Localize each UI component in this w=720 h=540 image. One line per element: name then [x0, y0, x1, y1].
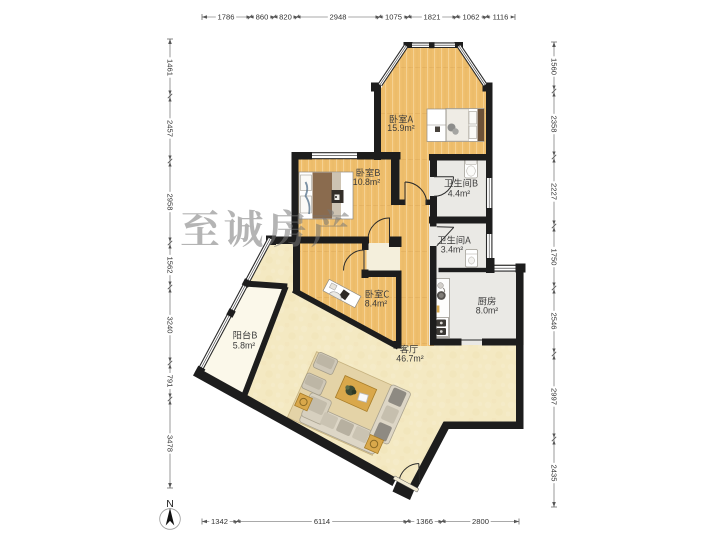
svg-text:3240: 3240 — [166, 317, 175, 334]
svg-text:6114: 6114 — [314, 517, 330, 526]
svg-text:15.9m²: 15.9m² — [387, 123, 414, 133]
svg-text:2546: 2546 — [550, 313, 559, 330]
svg-text:2958: 2958 — [166, 194, 175, 211]
svg-text:1062: 1062 — [463, 13, 480, 22]
svg-text:3.4m²: 3.4m² — [441, 245, 464, 255]
svg-text:2948: 2948 — [330, 13, 347, 22]
svg-text:8.4m²: 8.4m² — [365, 299, 388, 309]
svg-text:1786: 1786 — [218, 13, 235, 22]
svg-text:1821: 1821 — [424, 13, 441, 22]
svg-text:2435: 2435 — [550, 465, 559, 482]
svg-text:1750: 1750 — [550, 249, 559, 266]
svg-text:2800: 2800 — [472, 517, 489, 526]
svg-text:1116: 1116 — [493, 13, 509, 22]
svg-text:820: 820 — [279, 13, 292, 22]
svg-text:10.8m²: 10.8m² — [353, 177, 380, 187]
svg-text:1075: 1075 — [385, 13, 402, 22]
svg-text:791: 791 — [166, 375, 175, 388]
svg-text:4.4m²: 4.4m² — [448, 189, 471, 199]
svg-text:2457: 2457 — [166, 120, 175, 137]
svg-text:2227: 2227 — [550, 183, 559, 200]
svg-text:1560: 1560 — [550, 58, 559, 75]
svg-text:1342: 1342 — [211, 517, 228, 526]
svg-text:46.7m²: 46.7m² — [396, 354, 423, 364]
svg-text:860: 860 — [256, 13, 269, 22]
svg-text:2997: 2997 — [550, 388, 559, 405]
svg-text:1562: 1562 — [166, 257, 175, 274]
svg-text:1461: 1461 — [166, 59, 175, 76]
svg-text:2358: 2358 — [550, 116, 559, 133]
svg-text:3478: 3478 — [166, 435, 175, 452]
svg-text:1366: 1366 — [416, 517, 433, 526]
svg-text:5.8m²: 5.8m² — [233, 341, 256, 351]
svg-text:8.0m²: 8.0m² — [476, 306, 499, 316]
